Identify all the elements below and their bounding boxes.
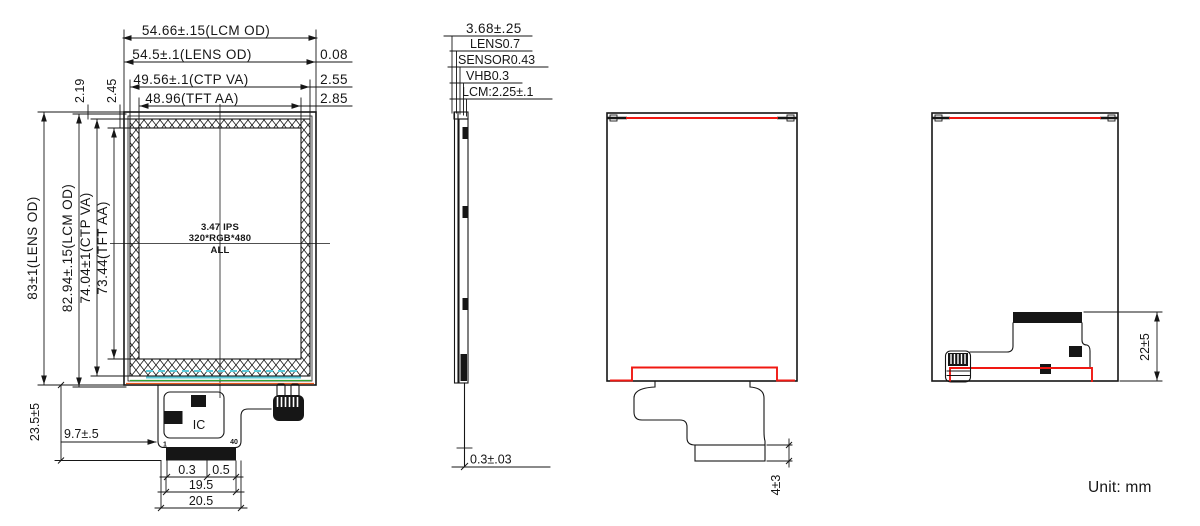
back2-red-bottom-line (950, 368, 1092, 381)
side-bottom-block (461, 354, 468, 381)
back1-connector-dimension: 4±3 (767, 439, 792, 495)
back2-component-2 (1040, 364, 1051, 374)
side-lens-layer (455, 112, 459, 383)
side-stack-callouts: 3.68±.25 LENS0.7 SENSOR0.43 VHB0.3 LCM:2… (444, 21, 552, 116)
stack-layer-vhb: VHB0.3 (466, 69, 509, 83)
back2-fpc-fold-left (970, 323, 1013, 352)
back-view-fpc-down: 4±3 (607, 113, 797, 495)
dim-pin-gap-left: 0.3 (178, 463, 195, 477)
dim-pin-span: 19.5 (189, 478, 213, 492)
back2-folded-connector-bar (1013, 312, 1082, 323)
back1-red-bottom-line (611, 368, 794, 381)
dim-tft-aa-height: 73.44(TFT AA) (95, 201, 110, 294)
dim-fpc-offset: 9.7±.5 (64, 427, 99, 441)
dim-top-gap-ctp: 2.19 (73, 79, 87, 103)
dim-offset-lens: 0.08 (320, 47, 348, 62)
lcd-module-mechanical-drawing: 3.47 IPS 320*RGB*480 ALL 54.66±.15(LCM O… (0, 0, 1200, 526)
front-fpc: IC 1 40 (158, 384, 304, 461)
back2-component-1 (1069, 346, 1082, 357)
front-left-dimensions: 83±1(LENS OD) 82.94±.15(LCM OD) 74.04±1(… (25, 79, 139, 387)
side-tab-2 (463, 206, 468, 218)
dim-fpc-width: 20.5 (189, 494, 213, 508)
stack-layer-lens: LENS0.7 (470, 37, 520, 51)
back1-board-connector (695, 445, 765, 461)
front-bottom-dimensions: 0.3 0.5 19.5 20.5 (155, 461, 247, 511)
panel-resolution-label: 320*RGB*480 (189, 233, 251, 244)
side-fpc-dimension: 0.3±.03 (452, 448, 550, 470)
fpc-pin-bar (166, 448, 236, 461)
dim-lcm-od-width: 54.66±.15(LCM OD) (142, 23, 270, 38)
dim-offset-ctp: 2.55 (320, 72, 348, 87)
front-view: 3.47 IPS 320*RGB*480 ALL 54.66±.15(LCM O… (25, 23, 352, 511)
dim-fpc-thickness: 0.3±.03 (470, 453, 512, 467)
dim-total-thickness: 3.68±.25 (466, 21, 522, 36)
stack-layer-sensor: SENSOR0.43 (458, 53, 535, 67)
back1-outline (607, 113, 797, 381)
front-fpc-left-dimensions: 23.5±5 9.7±.5 (28, 382, 161, 464)
back1-fpc-left-edge (634, 381, 695, 445)
dim-lcm-od-height: 82.94±.15(LCM OD) (60, 184, 75, 312)
dim-lens-od-width: 54.5±.1(LENS OD) (132, 47, 252, 62)
pin-40-label: 40 (230, 439, 238, 446)
back2-fold-dimension: 22±5 (1084, 312, 1162, 381)
dim-top-gap-tft: 2.45 (105, 79, 119, 103)
dim-fold-height: 22±5 (1138, 333, 1152, 361)
stack-layer-lcm: LCM:2.25±.1 (462, 85, 534, 99)
dim-offset-tft: 2.85 (320, 91, 348, 106)
side-tab-1 (463, 127, 468, 139)
side-body (459, 119, 468, 383)
side-tab-3 (463, 298, 468, 310)
side-profile (454, 112, 468, 467)
unit-note: Unit: mm (1088, 479, 1152, 496)
dim-lens-od-height: 83±1(LENS OD) (25, 196, 40, 299)
drawing-canvas: 3.47 IPS 320*RGB*480 ALL 54.66±.15(LCM O… (0, 0, 1200, 526)
dim-fpc-length: 23.5±5 (28, 403, 42, 441)
dim-ctp-va-height: 74.04±1(CTP VA) (78, 192, 93, 303)
fpc-component-1 (191, 395, 206, 407)
pin-1-label: 1 (163, 442, 167, 449)
panel-viewing-label: ALL (210, 245, 229, 256)
back2-outline (932, 113, 1118, 381)
ic-label: IC (193, 418, 206, 432)
back1-fpc-right-edge (750, 381, 765, 445)
side-view: 3.68±.25 LENS0.7 SENSOR0.43 VHB0.3 LCM:2… (444, 21, 552, 470)
back2-fpc-fold-right (1082, 323, 1090, 367)
dim-ctp-va-width: 49.56±.1(CTP VA) (133, 72, 248, 87)
back-view-fpc-folded: 22±5 (932, 113, 1162, 382)
dim-tft-aa-width: 48.96(TFT AA) (145, 91, 238, 106)
dim-connector-height: 4±3 (769, 475, 783, 496)
dim-pin-gap-right: 0.5 (212, 463, 229, 477)
fpc-component-2 (165, 411, 183, 424)
panel-size-label: 3.47 IPS (201, 222, 239, 233)
